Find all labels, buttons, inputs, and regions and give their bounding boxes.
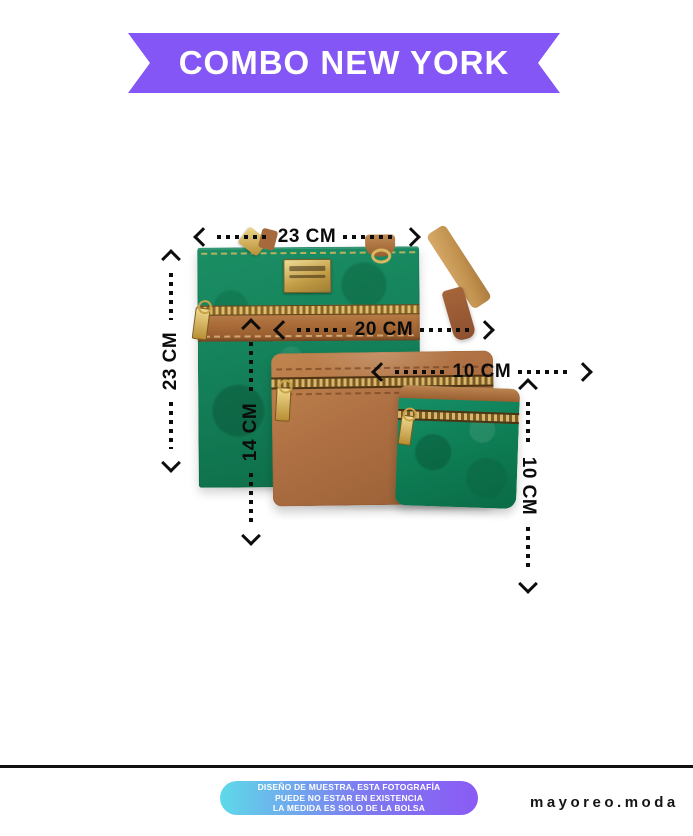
dimension-bag-width: 23 CM: [196, 226, 418, 248]
dotted-line: [169, 402, 173, 449]
arrowhead-down-icon: [518, 574, 538, 594]
dotted-line: [420, 328, 471, 332]
arrowhead-right-icon: [475, 320, 495, 340]
arrowhead-down-icon: [161, 453, 181, 473]
dimension-label: 20 CM: [355, 319, 413, 341]
dimension-label: 23 CM: [160, 332, 182, 390]
arrowhead-up-icon: [241, 318, 261, 338]
dotted-line: [217, 235, 271, 239]
disclaimer-line: LA MEDIDA ES SOLO DE LA BOLSA: [273, 803, 425, 814]
dotted-line: [343, 235, 397, 239]
dimension-label: 23 CM: [278, 226, 336, 248]
product-infographic: COMBO NEW YORK 23 CM: [0, 0, 693, 836]
arrowhead-down-icon: [241, 526, 261, 546]
dotted-line: [249, 342, 253, 391]
disclaimer-line: DISEÑO DE MUESTRA, ESTA FOTOGRAFÍA: [258, 782, 441, 793]
dimension-pouch-height: 14 CM: [238, 321, 264, 543]
disclaimer-banner: DISEÑO DE MUESTRA, ESTA FOTOGRAFÍA PUEDE…: [220, 781, 478, 815]
dotted-line: [518, 370, 569, 374]
arrowhead-left-icon: [371, 362, 391, 382]
dotted-line: [297, 328, 348, 332]
dotted-line: [169, 273, 173, 320]
arrowhead-left-icon: [273, 320, 293, 340]
brand-watermark: mayoreo.moda: [530, 794, 679, 811]
arrowhead-left-icon: [193, 227, 213, 247]
zipper-pull-icon: [275, 387, 292, 422]
zipper-pull-icon: [398, 414, 415, 446]
arrowhead-up-icon: [518, 378, 538, 398]
dimension-label: 10 CM: [453, 361, 511, 383]
arrowhead-right-icon: [401, 227, 421, 247]
dotted-line: [526, 402, 530, 445]
coin-purse-trim: [399, 385, 520, 402]
dotted-line: [395, 370, 446, 374]
coin-purse: [395, 385, 520, 509]
dimension-coin-width: 10 CM: [374, 361, 590, 383]
dimension-pouch-width: 20 CM: [276, 319, 492, 341]
footer-divider: [0, 765, 693, 768]
dotted-line: [249, 473, 253, 522]
arrowhead-up-icon: [161, 249, 181, 269]
disclaimer-line: PUEDE NO ESTAR EN EXISTENCIA: [275, 793, 423, 804]
brand-plate: [283, 259, 331, 293]
dimension-bag-height: 23 CM: [158, 252, 184, 470]
zipper-teeth-icon: [198, 304, 420, 316]
dimension-label: 14 CM: [240, 403, 262, 461]
dimension-coin-height: 10 CM: [515, 381, 541, 591]
dotted-line: [526, 527, 530, 570]
dimension-label: 10 CM: [517, 457, 539, 515]
arrowhead-right-icon: [573, 362, 593, 382]
banner-title: COMBO NEW YORK: [179, 44, 510, 82]
banner-ribbon: COMBO NEW YORK: [128, 33, 560, 93]
